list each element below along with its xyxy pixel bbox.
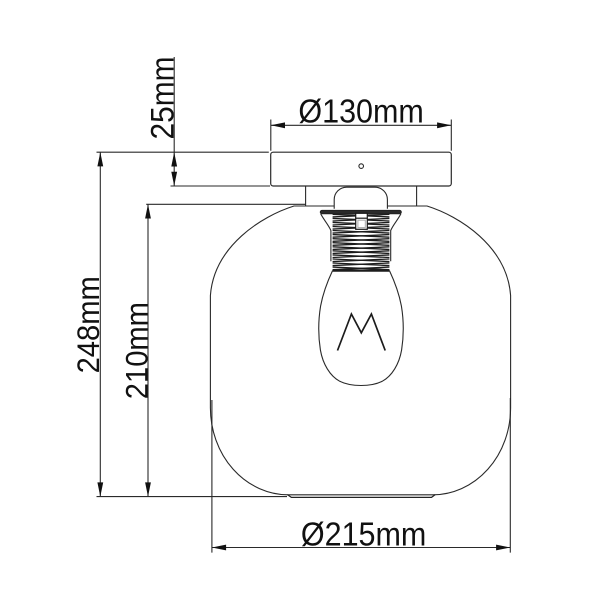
- svg-text:248mm: 248mm: [72, 276, 106, 373]
- svg-text:210mm: 210mm: [121, 302, 155, 399]
- svg-text:Ø215mm: Ø215mm: [301, 515, 426, 552]
- svg-text:25mm: 25mm: [144, 56, 180, 139]
- svg-text:Ø130mm: Ø130mm: [298, 92, 423, 129]
